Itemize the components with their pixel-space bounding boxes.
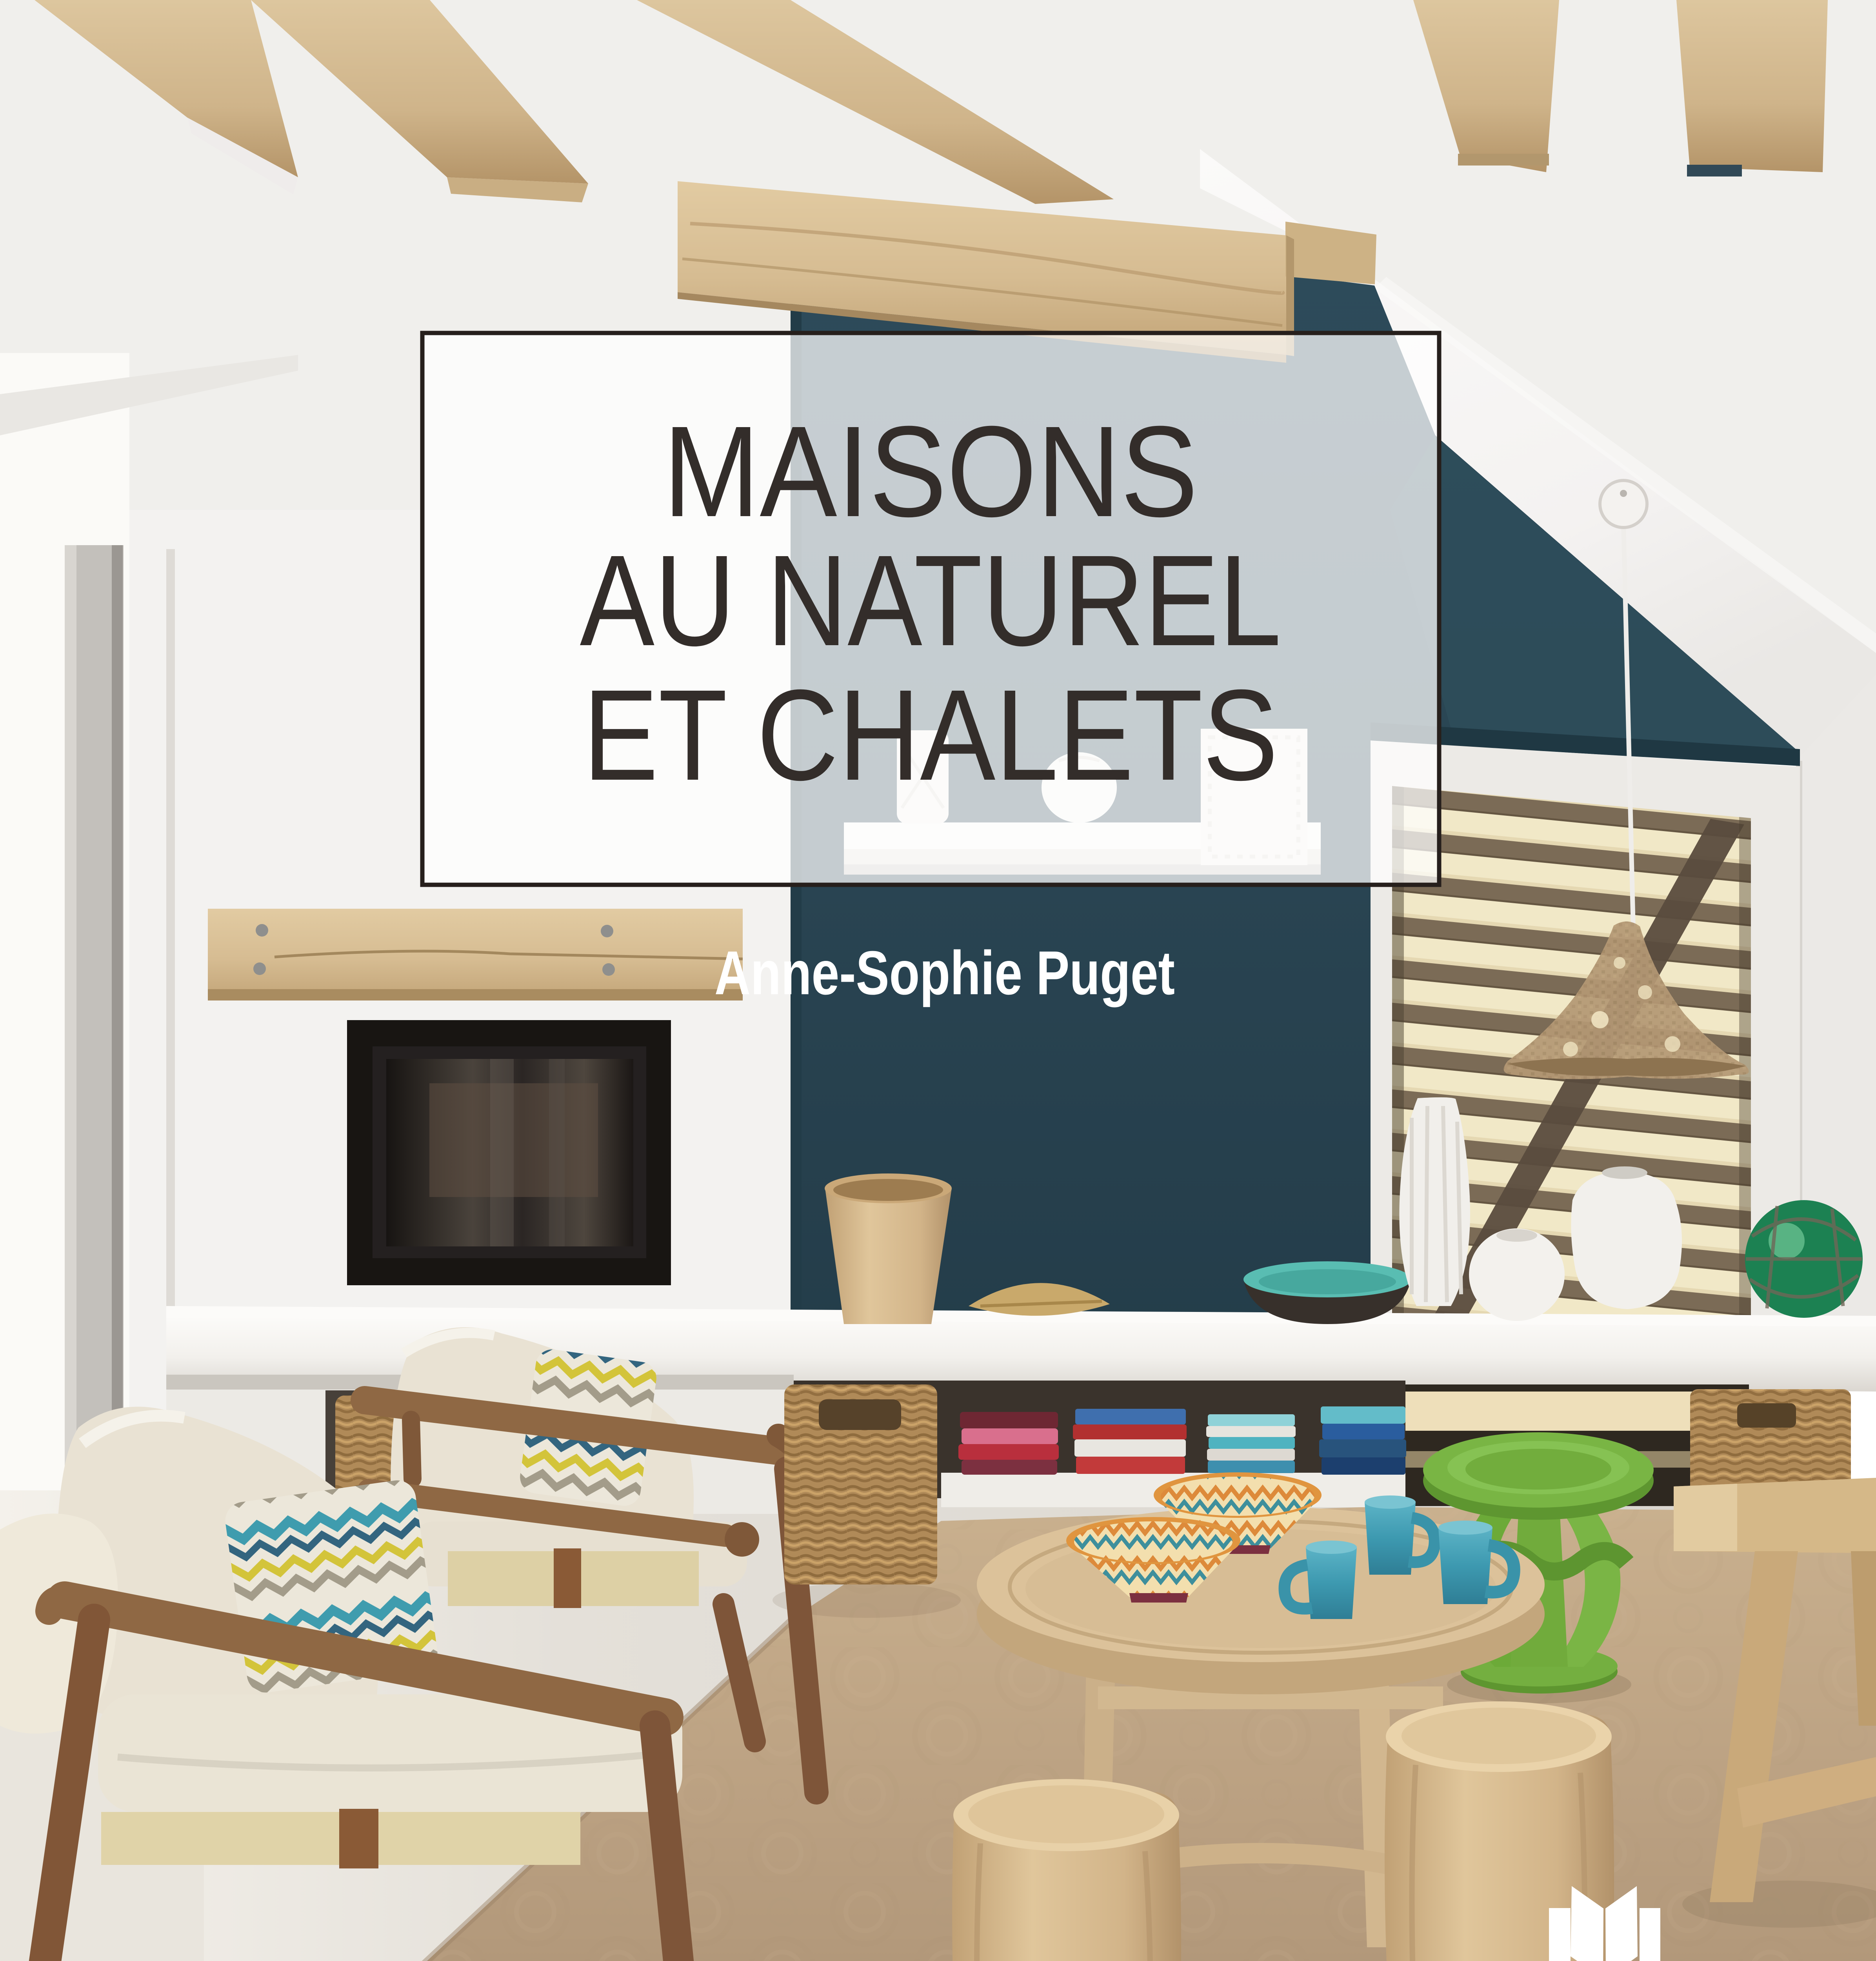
svg-text:Anne-Sophie Puget: Anne-Sophie Puget <box>714 939 1175 1008</box>
svg-text:massın: massın <box>1481 1957 1719 1961</box>
svg-text:ET CHALETS: ET CHALETS <box>583 662 1278 807</box>
svg-text:AU NATUREL: AU NATUREL <box>580 528 1282 673</box>
svg-text:MAISONS: MAISONS <box>663 399 1198 544</box>
